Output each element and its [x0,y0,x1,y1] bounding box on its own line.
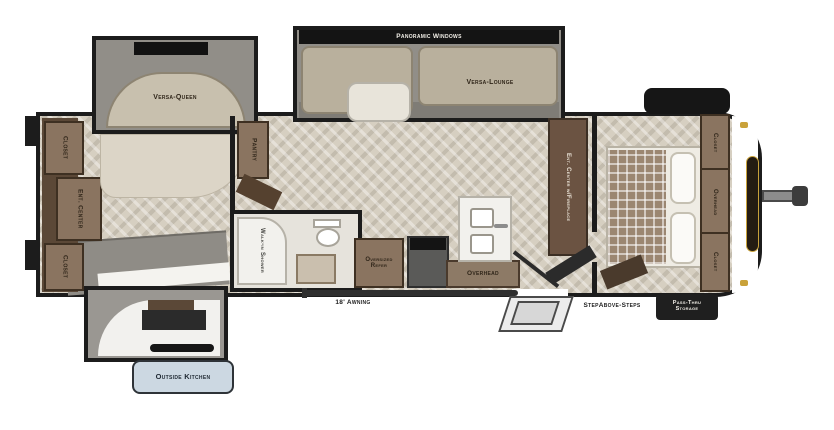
outside-kitchen-badge: Outside Kitchen [132,360,234,394]
pantry-label: Pantry [250,138,257,161]
rear-bumper-bottom [25,240,37,270]
sink-bowl-2 [470,234,494,254]
outside-kitchen-label: Outside Kitchen [156,373,211,381]
toilet-bowl [316,228,340,247]
steps-label: StepAbove-Steps [566,303,658,310]
versa-lounge-label: Versa-Lounge [430,79,550,86]
awning-end-cap [302,288,307,298]
refrigerator: Oversized Refer [354,238,404,288]
marker-light-bottom [740,280,748,286]
bedroom-closet-bottom-label: Closet [712,252,718,271]
walk-in-shower: Walk-in Shower [237,217,287,285]
bedroom-overhead: Overhead [702,172,728,234]
overhead-label: Overhead [467,271,499,278]
rear-closet-top: Closet [44,121,84,175]
pass-thru-badge: Pass-Thru Storage [656,294,718,320]
bedroom-closet-top: Closet [702,118,728,170]
ent-center-fireplace-label: Ent. Center w/Fireplace [565,153,571,221]
outside-kitchen-griddle [142,310,206,330]
bedroom-overhead-label: Overhead [712,189,718,216]
pantry-wall [230,116,235,216]
bedroom-wall-lower [592,262,597,293]
versa-queen-window [134,42,208,55]
panoramic-windows-label: Panoramic Windows [396,34,461,41]
outside-kitchen-shelf [148,300,194,310]
hitch-coupler [792,186,808,206]
entry-steps-inner [510,301,560,325]
pantry-cabinet: Pantry [237,121,269,179]
oversized-refer-label: Oversized Refer [359,257,399,270]
marker-light-top [740,122,748,128]
floorplan-canvas: Closet Ent. Center Closet Versa-Queen Pa… [0,0,834,430]
rear-closet-bottom: Closet [44,243,84,291]
ent-center-fireplace: Ent. Center w/Fireplace [548,118,588,256]
bedroom-closet-top-label: Closet [712,133,718,152]
bed-pillow-2 [670,212,696,264]
awning-bar [304,290,518,296]
versa-lounge-sofa [418,46,558,106]
awning-label: 18' Awning [318,300,388,307]
rear-ent-center: Ent. Center [56,177,102,241]
panoramic-window-band: Panoramic Windows [299,30,559,44]
bedroom-ac-unit [644,88,730,114]
overhead-counter: Overhead [446,260,520,288]
bed-pillow-1 [670,152,696,204]
outside-kitchen-mat [150,344,214,352]
sink-bowl-1 [470,208,494,228]
toilet-tank [313,219,341,228]
pass-thru-line2: Storage [676,307,699,313]
walk-in-shower-label: Walk-in Shower [259,228,265,273]
rear-bumper-top [25,116,37,146]
sofa-table [347,82,411,122]
bedroom-closet-bottom: Closet [702,236,728,288]
sink-faucet [494,224,508,228]
versa-queen-label: Versa-Queen [110,94,240,101]
hitch-bar [762,190,794,202]
brand-logo [746,156,759,252]
stove-burners [410,238,446,250]
bath-vanity [296,254,336,284]
rear-closet-bottom-label: Closet [61,255,68,278]
bedroom-wall-upper [592,116,597,232]
bed-blanket [608,150,666,264]
rear-closet-top-label: Closet [61,136,68,159]
rear-ent-center-label: Ent. Center [76,189,83,229]
